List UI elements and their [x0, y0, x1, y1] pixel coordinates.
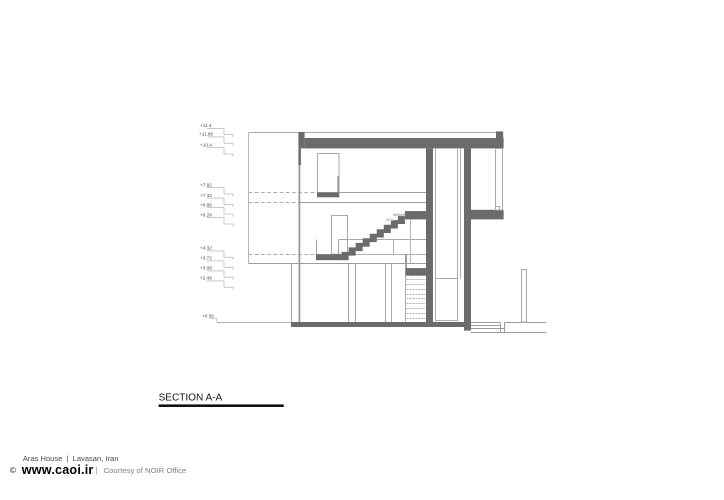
- svg-text:SECTION A-A: SECTION A-A: [159, 393, 223, 404]
- svg-text:www.caoi.ir: www.caoi.ir: [21, 463, 94, 477]
- svg-text:Courtesy of NOIR Office: Courtesy of NOIR Office: [104, 466, 187, 475]
- svg-text:|: |: [96, 465, 98, 475]
- svg-text:©: ©: [10, 465, 17, 475]
- svg-text:+4.32: +4.32: [200, 246, 212, 251]
- svg-text:+7.32: +7.32: [200, 193, 212, 198]
- svg-text:+6.24: +6.24: [200, 212, 212, 217]
- svg-text:+0.36: +0.36: [202, 313, 214, 318]
- svg-text:+3.72: +3.72: [200, 256, 212, 261]
- svg-text:+7.92: +7.92: [200, 182, 212, 187]
- svg-text:+3.08: +3.08: [200, 266, 212, 271]
- svg-text:+11.4: +11.4: [200, 123, 212, 128]
- svg-text:+2.48: +2.48: [200, 276, 212, 281]
- svg-text:+10.4: +10.4: [200, 142, 212, 147]
- svg-text:+6.88: +6.88: [200, 202, 212, 207]
- svg-text:+11.80: +11.80: [199, 132, 214, 137]
